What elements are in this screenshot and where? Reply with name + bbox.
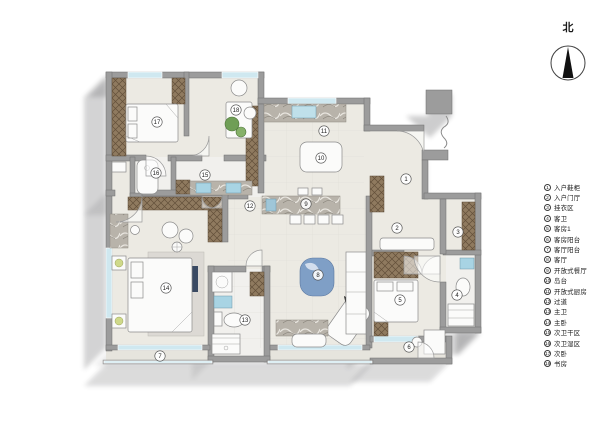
legend-item: 13主卫 [544,307,598,317]
legend-item: 9开放式餐厅 [544,265,598,275]
room-marker-number: 16 [153,171,160,177]
legend-number: 2 [544,194,551,201]
room-marker-number: 13 [242,318,249,324]
legend-text: 挂衣区 [554,203,574,212]
legend-text: 客卫 [554,214,567,223]
floor-plan-page: 123456789101112131415161718 北 1入户鞋柜2入户门厅… [0,0,600,424]
legend-number: 1 [544,184,551,191]
north-label: 北 [546,22,590,35]
legend-text: 主卫 [554,307,567,316]
legend-text: 主卧 [554,318,567,327]
legend-item: 8客厅 [544,255,598,265]
legend-text: 入户门厅 [554,193,580,202]
compass-label-block: 北 [546,22,590,35]
legend-item: 2入户门厅 [544,192,598,202]
legend-number: 5 [544,225,551,232]
legend-number: 7 [544,246,551,253]
room-marker-number: 18 [233,108,240,114]
entry-foyer-furniture [380,238,434,250]
legend-item: 14主卧 [544,317,598,327]
legend-number: 3 [544,204,551,211]
room-marker-number: 17 [154,120,161,126]
legend-number: 16 [544,340,551,347]
legend-item: 6客房阳台 [544,234,598,244]
legend-text: 次卫湿区 [554,339,580,348]
legend-number: 14 [544,319,551,326]
north-compass [551,46,585,80]
legend-text: 客厅 [554,255,567,264]
legend-number: 6 [544,236,551,243]
room-marker-number: 15 [202,173,209,179]
legend-item: 12过道 [544,296,598,306]
legend-item: 5客房1 [544,224,598,234]
legend-number: 11 [544,288,551,295]
room-marker-number: 11 [321,129,328,135]
legend-number: 8 [544,256,551,263]
room-marker-number: 14 [163,286,170,292]
legend-item: 16次卫湿区 [544,338,598,348]
legend-number: 17 [544,350,551,357]
legend-text: 客厅阳台 [554,245,580,254]
legend-text: 岛台 [554,276,567,285]
legend-text: 次卧 [554,349,567,358]
legend-item: 11开放式厨房 [544,286,598,296]
legend-item: 7客厅阳台 [544,244,598,254]
legend-item: 1入户鞋柜 [544,182,598,192]
legend-text: 过道 [554,297,567,306]
legend-item: 3挂衣区 [544,203,598,213]
legend-text: 书房 [554,359,567,368]
legend-number: 10 [544,277,551,284]
legend-item: 17次卧 [544,348,598,358]
legend-number: 18 [544,360,551,367]
legend-item: 4客卫 [544,213,598,223]
legend-text: 开放式厨房 [554,287,587,296]
legend-number: 13 [544,308,551,315]
dry-vanity [190,181,252,195]
legend-text: 次卫干区 [554,328,580,337]
legend-number: 15 [544,329,551,336]
legend-number: 4 [544,215,551,222]
legend-item: 15次卫干区 [544,327,598,337]
legend-number: 9 [544,267,551,274]
legend-item: 18书房 [544,359,598,369]
legend-text: 开放式餐厅 [554,266,587,275]
room-marker-number: 12 [247,204,254,210]
legend-text: 客房1 [554,224,571,233]
legend-text: 入户鞋柜 [554,183,580,192]
legend-number: 12 [544,298,551,305]
legend: 1入户鞋柜2入户门厅3挂衣区4客卫5客房16客房阳台7客厅阳台8客厅9开放式餐厅… [544,182,598,369]
room-marker-number: 10 [318,156,325,162]
legend-text: 客房阳台 [554,235,580,244]
floor-plan-drawing: 123456789101112131415161718 [0,0,600,424]
legend-item: 10岛台 [544,276,598,286]
